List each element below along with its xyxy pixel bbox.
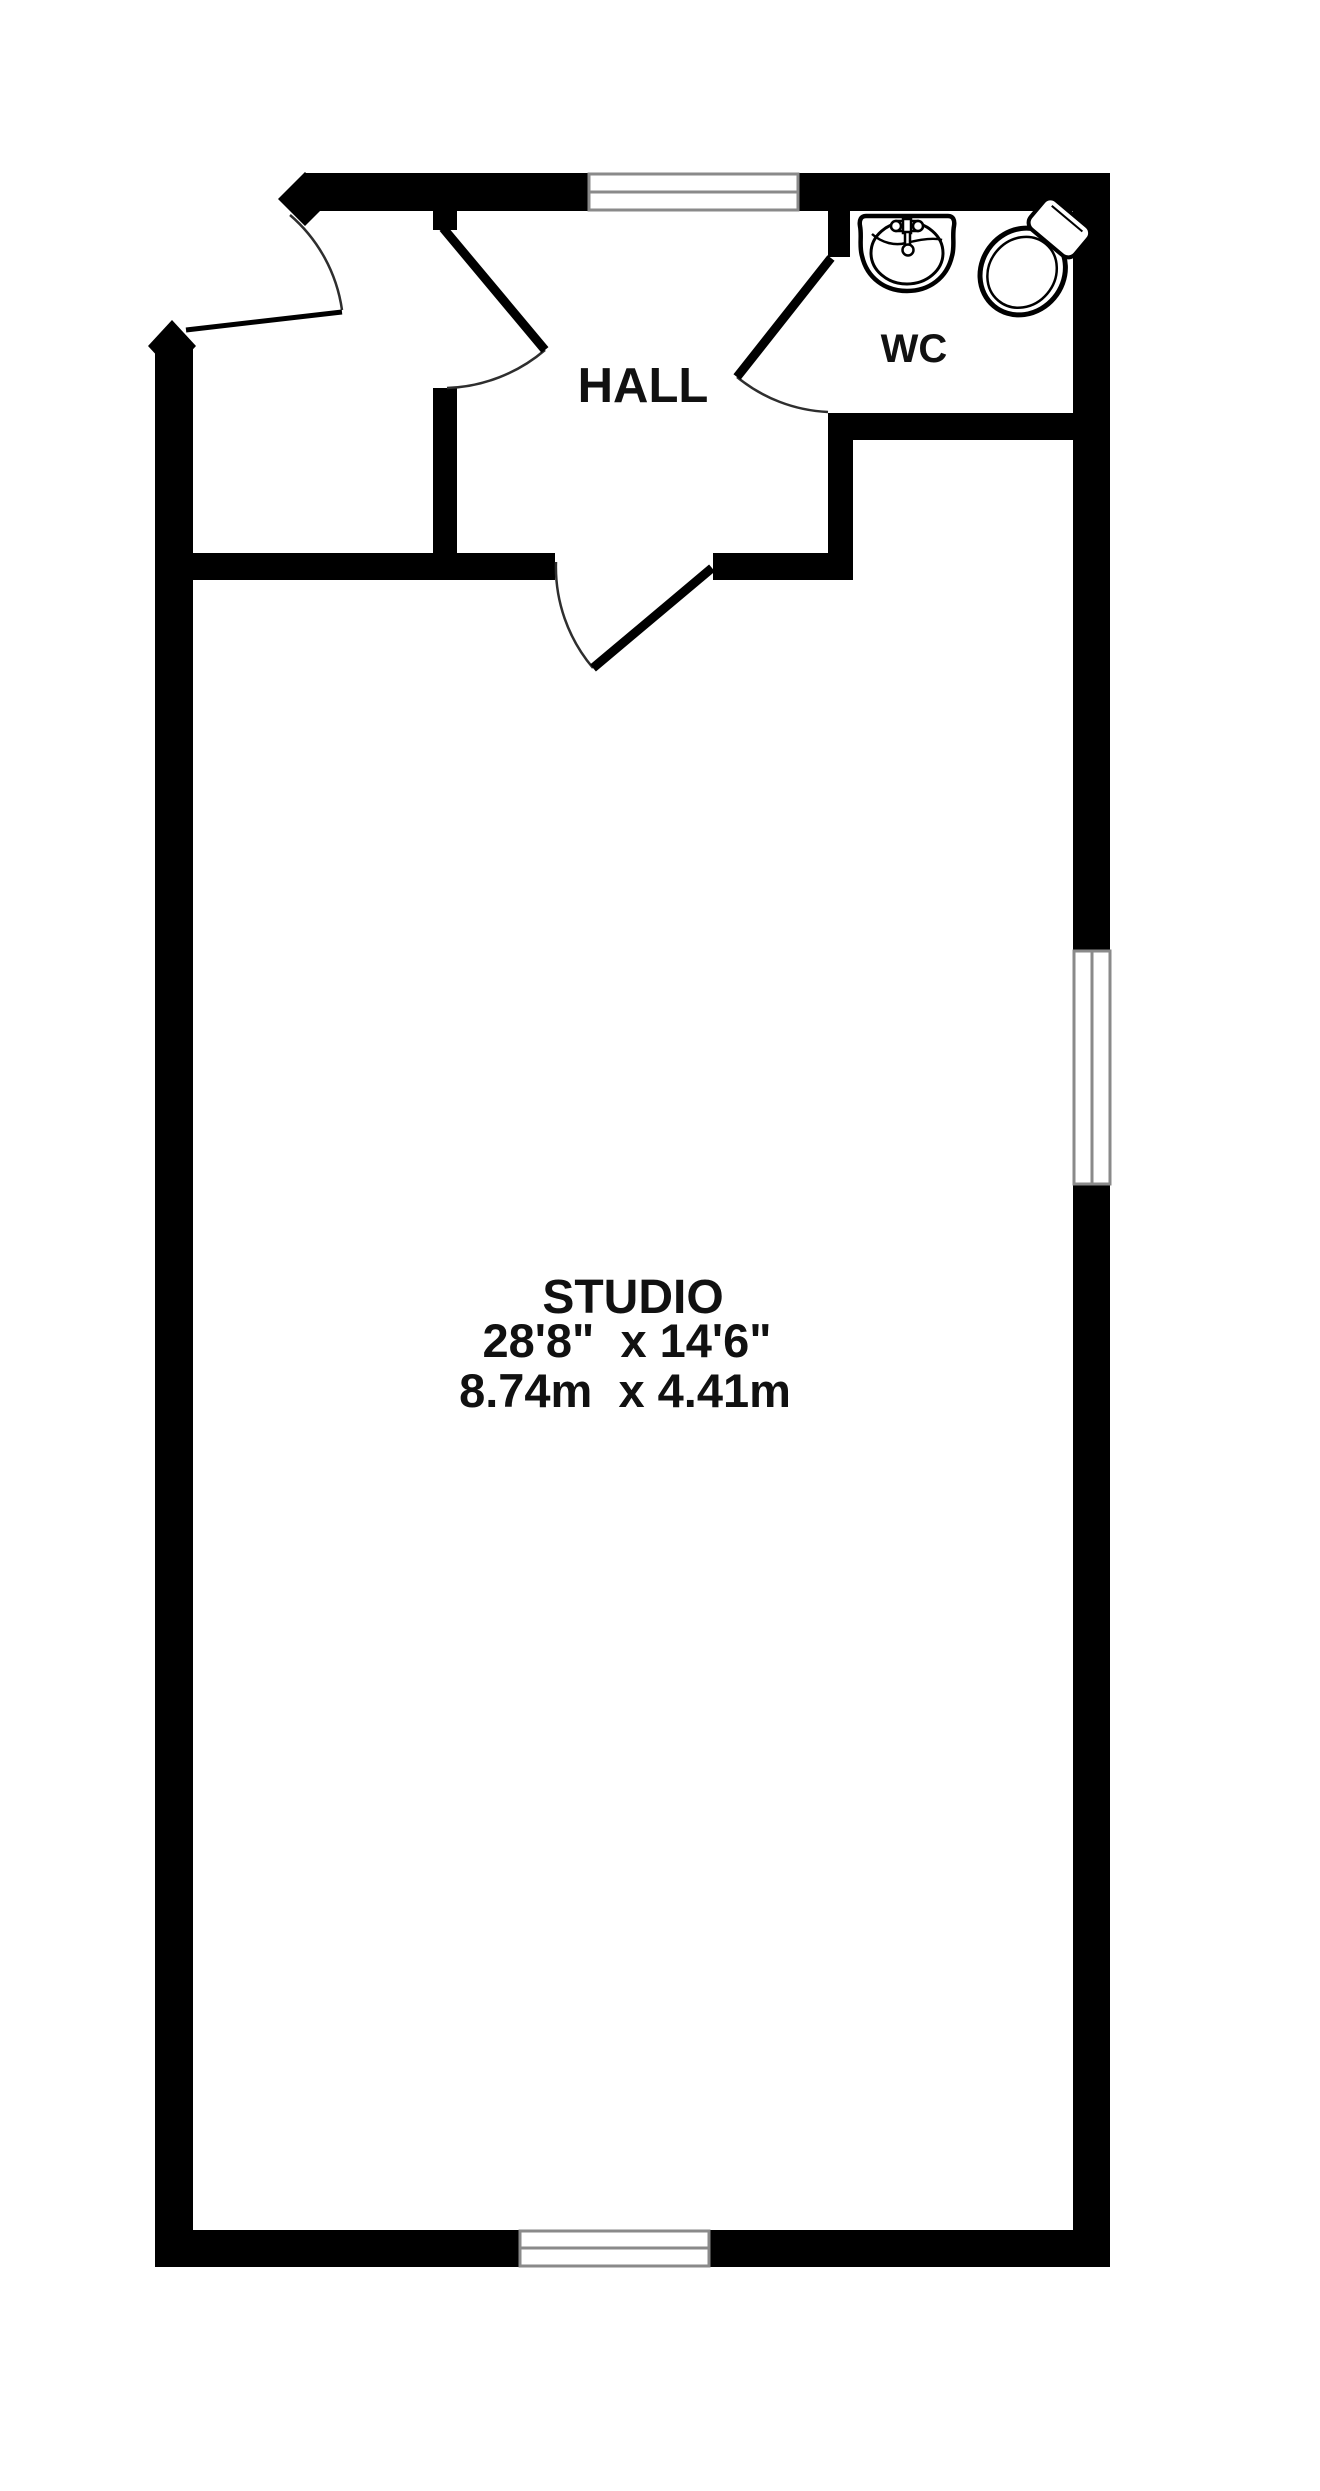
studio-door-swing-arc bbox=[556, 562, 593, 668]
wc-door-leaf bbox=[737, 258, 831, 377]
studio-door bbox=[556, 562, 712, 668]
entrance-door-leaf bbox=[186, 312, 342, 330]
bottom-wall-left-segment bbox=[155, 2230, 520, 2267]
sink-spout bbox=[905, 232, 910, 245]
hall-door-swing-arc bbox=[447, 350, 545, 388]
floor-plan: HALL WC STUDIO 28'8" x 14'6" 8.74m x 4.4… bbox=[0, 0, 1320, 2491]
sink-tap-left bbox=[891, 221, 901, 231]
bottom-wall-right-segment bbox=[709, 2230, 1110, 2267]
studio-door-leaf bbox=[593, 568, 712, 668]
divider-wall-left bbox=[193, 553, 555, 580]
doors bbox=[186, 215, 831, 668]
top-wall-left-segment bbox=[305, 173, 589, 211]
top-window bbox=[589, 174, 798, 210]
left-wall bbox=[155, 345, 193, 2267]
labels: HALL WC STUDIO 28'8" x 14'6" 8.74m x 4.4… bbox=[459, 327, 947, 1417]
wc-doorway-stub bbox=[828, 211, 850, 257]
entrance-door-swing-arc bbox=[290, 215, 342, 310]
wc-west-wall-lower bbox=[828, 440, 853, 580]
studio-dimensions-imperial: 28'8" x 14'6" bbox=[482, 1314, 771, 1367]
sink-icon bbox=[860, 216, 955, 291]
windows bbox=[520, 174, 1110, 2266]
hall-label: HALL bbox=[578, 359, 709, 413]
bottom-window bbox=[520, 2231, 709, 2266]
right-window bbox=[1074, 951, 1110, 1184]
walls bbox=[148, 172, 1110, 2267]
sink-drain bbox=[903, 245, 914, 256]
wc-label: WC bbox=[881, 327, 948, 371]
hall-door bbox=[443, 228, 545, 388]
hall-door-leaf bbox=[443, 228, 545, 350]
hall-interior-wall bbox=[433, 388, 457, 580]
right-wall-lower bbox=[1073, 1185, 1110, 2267]
studio-dimensions-metric: 8.74m x 4.41m bbox=[459, 1364, 791, 1417]
right-wall-upper bbox=[1073, 211, 1110, 950]
wc-door-swing-arc bbox=[737, 377, 828, 412]
wc-south-wall bbox=[828, 413, 1073, 440]
entrance-door bbox=[186, 215, 342, 330]
sink-tap-right bbox=[913, 221, 923, 231]
wc-door bbox=[737, 258, 831, 412]
